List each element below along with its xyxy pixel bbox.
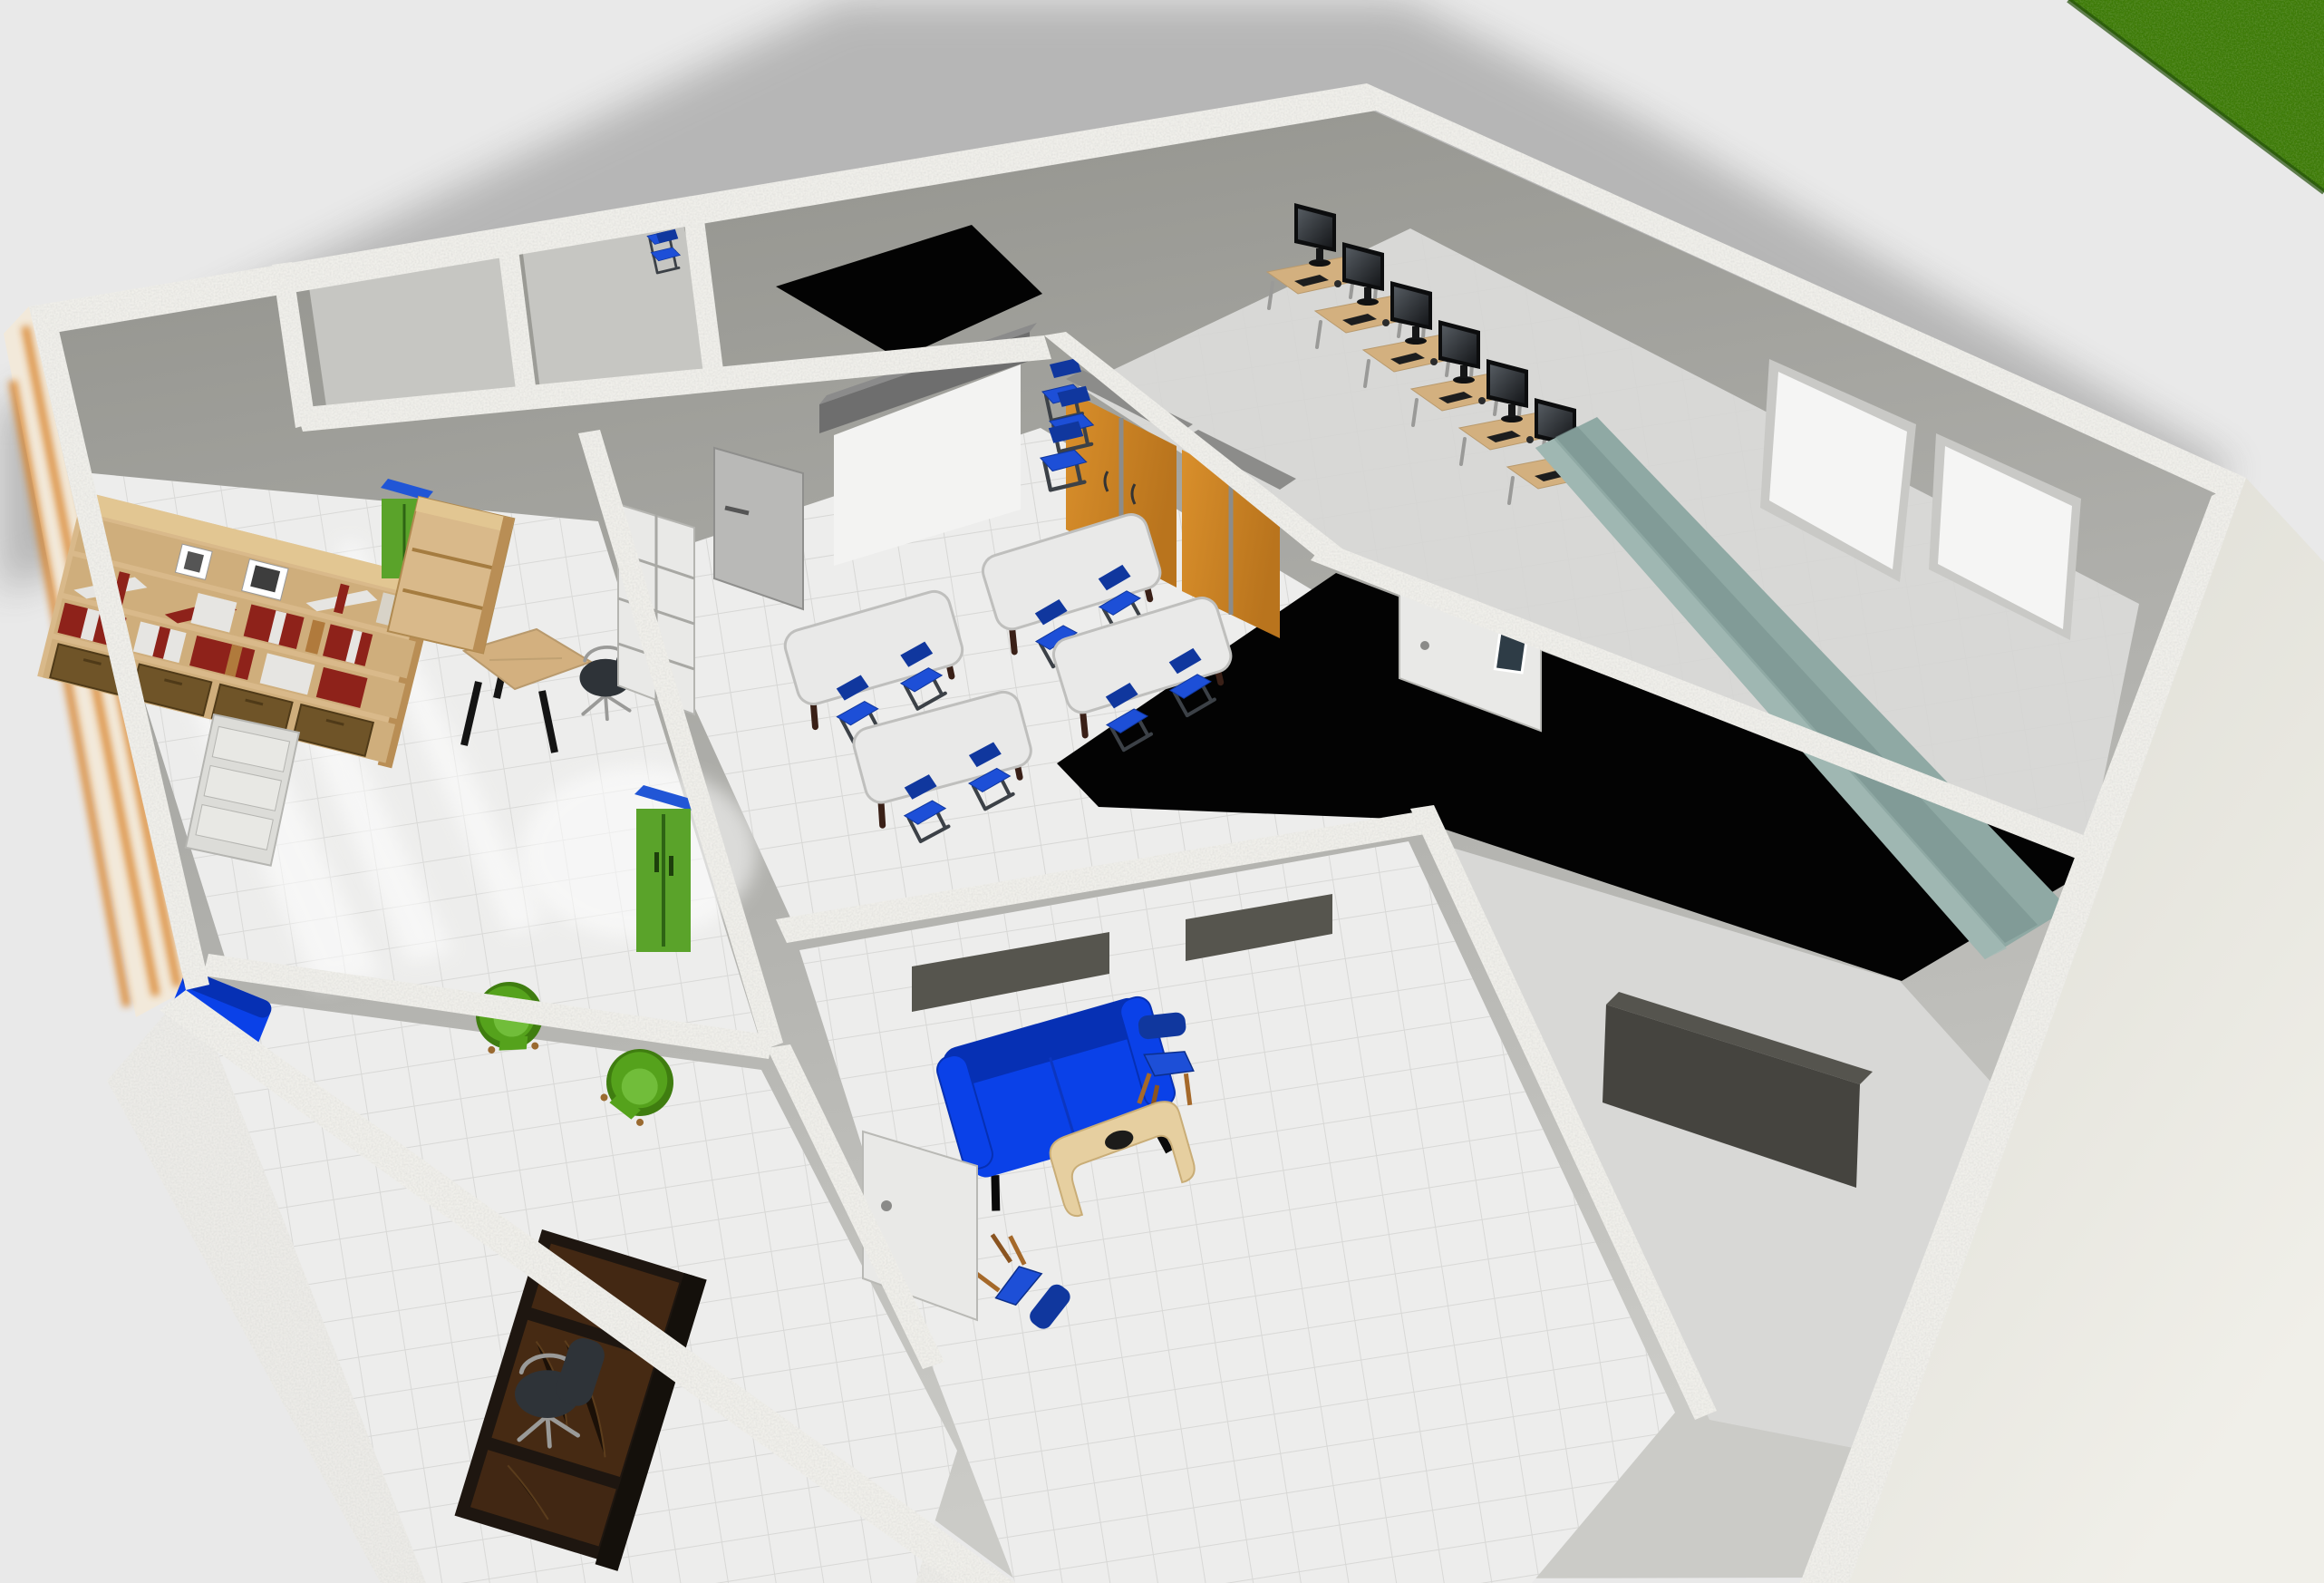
green-cabinet-library — [634, 785, 700, 952]
floorplan-viewport[interactable] — [0, 0, 2324, 1583]
door-handle — [881, 1200, 892, 1211]
floorplan-render — [0, 0, 2324, 1583]
